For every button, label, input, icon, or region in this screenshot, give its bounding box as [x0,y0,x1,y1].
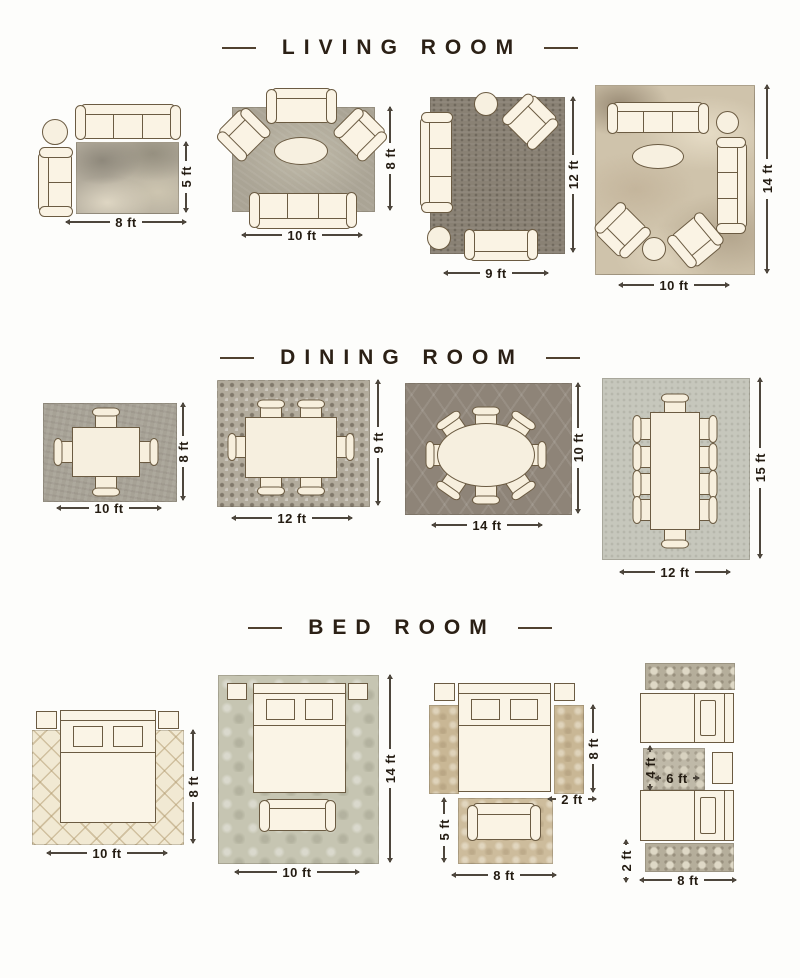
height-dimension: 14 ft [759,85,775,273]
title-dash [546,357,580,359]
twin-bed [640,693,734,743]
nightstand [227,683,247,700]
dimension-label: 2 ft [561,792,583,807]
twin-bed [640,790,734,841]
dimension-label: 14 ft [383,754,398,783]
runner-width-dimension: 2 ft [618,840,634,874]
bed [253,683,346,793]
nightstand [712,752,733,784]
area-rug [76,142,179,214]
dining-table [245,417,337,478]
dimension-label: 6 ft [666,771,688,786]
height-dimension: 8 ft [185,730,201,843]
width-dimension: 10 ft [619,277,729,293]
nightstand [36,711,57,729]
foot-rug-width-dimension: 8 ft [452,867,556,883]
section-title-text: DINING ROOM [276,346,524,370]
dimension-label: 10 ft [282,865,311,880]
height-dimension: 5 ft [178,142,194,212]
height-dimension: 8 ft [382,107,398,210]
width-dimension: 9 ft [444,265,548,281]
dining-room-title: DINING ROOM [0,346,800,370]
dimension-label: 2 ft [619,850,634,872]
three-seat-sofa [420,112,453,213]
dimension-label: 12 ft [660,565,689,580]
dining-table [72,427,140,477]
dimension-label: 8 ft [586,738,601,760]
foot-bench [259,799,336,832]
bed [458,683,551,792]
dimension-label: 12 ft [566,160,581,189]
oval-coffee-table [632,144,684,169]
dimension-label: 8 ft [186,776,201,798]
height-dimension: 12 ft [565,97,581,252]
runner-length-dimension: 8 ft [640,872,736,888]
runner-rug [645,843,734,872]
round-ottoman [642,237,666,261]
round-side-table [42,119,68,145]
dimension-label: 10 ft [92,846,121,861]
width-dimension: 12 ft [232,510,352,526]
dimension-label: 8 ft [493,868,515,883]
nightstand [554,683,575,701]
bed [60,710,156,823]
three-seat-sofa [716,137,747,234]
height-dimension: 9 ft [370,380,386,505]
dimension-label: 5 ft [437,819,452,841]
oval-coffee-table [274,137,328,165]
dimension-label: 10 ft [571,433,586,462]
dimension-label: 10 ft [287,228,316,243]
height-dimension: 8 ft [175,403,191,500]
dimension-label: 8 ft [383,148,398,170]
width-dimension: 8 ft [66,214,186,230]
loveseat [266,88,337,124]
foot-rug-height-dimension: 5 ft [436,798,452,862]
round-side-table [474,92,498,116]
title-dash [544,47,578,49]
nightstand [434,683,455,701]
height-dimension: 14 ft [382,675,398,862]
width-dimension: 10 ft [242,227,362,243]
width-dimension: 10 ft [47,845,167,861]
nightstand [348,683,368,700]
runner-rug [645,663,735,690]
height-dimension: 15 ft [752,378,768,558]
loveseat [464,229,538,261]
title-dash [518,627,552,629]
three-seat-sofa [607,102,709,134]
width-dimension: 12 ft [620,564,730,580]
runner-length-dimension: 8 ft [585,705,601,792]
dimension-label: 8 ft [677,873,699,888]
dimension-label: 10 ft [94,501,123,516]
dimension-label: 10 ft [659,278,688,293]
width-dimension: 10 ft [57,500,161,516]
runner-rug [429,705,459,794]
dimension-label: 12 ft [277,511,306,526]
dimension-label: 14 ft [472,518,501,533]
dimension-label: 9 ft [371,432,386,454]
runner-rug [554,705,584,794]
dimension-label: 14 ft [760,164,775,193]
nightstand [158,711,179,729]
living-room-title: LIVING ROOM [0,36,800,60]
dimension-label: 15 ft [753,453,768,482]
dining-table [650,412,700,530]
center-rug-width-dimension: 6 ft [655,770,699,786]
three-seat-sofa [249,192,357,229]
title-dash [248,627,282,629]
width-dimension: 14 ft [432,517,542,533]
round-side-table [716,111,739,134]
title-dash [222,47,256,49]
oval-dining-table [437,423,535,487]
dimension-label: 8 ft [115,215,137,230]
rug-size-guide: LIVING ROOM 8 ft 5 ft 10 ft 8 ft [0,0,800,978]
loveseat [38,147,73,217]
runner-width-dimension: 2 ft [548,791,596,807]
round-ottoman [427,226,451,250]
dimension-label: 5 ft [179,166,194,188]
dimension-label: 8 ft [176,441,191,463]
foot-bench [467,803,541,841]
title-dash [220,357,254,359]
section-title-text: LIVING ROOM [278,36,522,60]
width-dimension: 10 ft [235,864,359,880]
height-dimension: 10 ft [570,383,586,513]
dimension-label: 9 ft [485,266,507,281]
three-seat-sofa [75,104,181,140]
section-title-text: BED ROOM [304,616,496,640]
bed-room-title: BED ROOM [0,616,800,640]
